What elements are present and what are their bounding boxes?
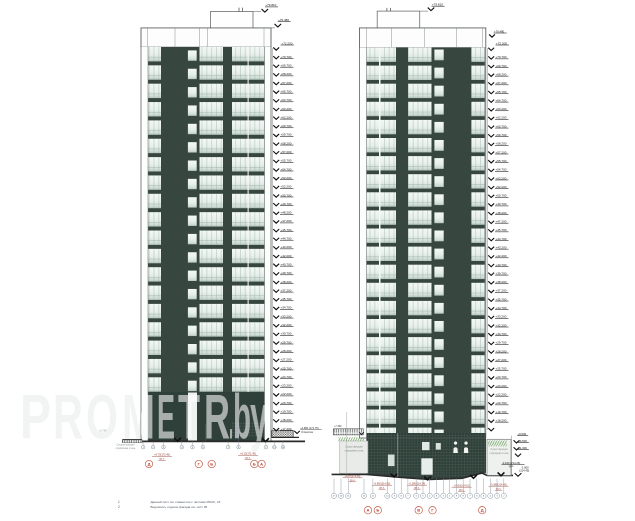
svg-text:+40.700: +40.700 [281, 262, 292, 266]
svg-text:+42.200: +42.200 [281, 254, 292, 258]
svg-text:Существующая: Существующая [116, 443, 135, 446]
svg-text:подпорная стена: подпорная стена [345, 449, 364, 452]
svg-text:(214.45): (214.45) [519, 468, 529, 472]
svg-text:+32.200: +32.200 [496, 323, 507, 327]
svg-text:+18.200: +18.200 [281, 418, 292, 422]
svg-text:+25.700: +25.700 [496, 367, 507, 371]
svg-text:+57.200: +57.200 [281, 150, 292, 154]
svg-text:+79.810: +79.810 [265, 3, 276, 7]
svg-text:ур.з.: ур.з. [159, 458, 164, 461]
svg-text:+53.200: +53.200 [281, 176, 292, 180]
svg-text:ур.з.: ур.з. [459, 488, 464, 491]
svg-text:+62.200: +62.200 [496, 116, 507, 120]
svg-text:+57.200: +57.200 [496, 150, 507, 154]
svg-text:+52.200: +52.200 [496, 185, 507, 189]
svg-text:+34.700: +34.700 [496, 306, 507, 310]
svg-text:+59.700: +59.700 [281, 133, 292, 137]
svg-text:В: В [417, 508, 420, 513]
svg-text:+22.200: +22.200 [496, 393, 507, 397]
svg-text:+22.200: +22.200 [281, 392, 292, 396]
svg-text:+4.680 (171.75): +4.680 (171.75) [300, 426, 319, 430]
svg-text:+17.200: +17.200 [281, 427, 292, 431]
svg-text:+35.700: +35.700 [496, 297, 507, 301]
svg-text:+27.200: +27.200 [496, 358, 507, 362]
svg-text:+59.700: +59.700 [496, 133, 507, 137]
svg-text:+23.200: +23.200 [496, 384, 507, 388]
svg-text:+70.700: +70.700 [281, 55, 292, 59]
svg-text:ур.з.: ур.з. [379, 486, 384, 489]
svg-text:-0.003(214.10): -0.003(214.10) [453, 484, 470, 487]
svg-text:+76.480: +76.480 [278, 18, 289, 22]
svg-text:+28.200: +28.200 [496, 349, 507, 353]
svg-text:+39.700: +39.700 [496, 271, 507, 275]
svg-text:Д: Д [481, 508, 484, 513]
svg-text:+18.200: +18.200 [496, 418, 507, 422]
svg-text:+68.200: +68.200 [281, 72, 292, 76]
svg-text:+47.200: +47.200 [496, 220, 507, 224]
svg-text:ур.з.: ур.з. [509, 465, 515, 468]
svg-text:+40.700: +40.700 [496, 263, 507, 267]
svg-text:Б: Б [210, 461, 213, 466]
svg-text:+33.200: +33.200 [281, 314, 292, 318]
svg-text:+72.200: +72.200 [496, 41, 507, 45]
svg-text:+65.700: +65.700 [496, 90, 507, 94]
svg-text:+68.200: +68.200 [496, 72, 507, 76]
svg-text:+23.200: +23.200 [281, 384, 292, 388]
svg-text:Данный лист см. совместно с ли: Данный лист см. совместно с листами 05/А… [151, 500, 221, 504]
svg-text:+72.200: +72.200 [282, 41, 293, 45]
svg-text:+19.700: +19.700 [281, 410, 292, 414]
svg-text:+65.700: +65.700 [281, 89, 292, 93]
svg-text:+32.200: +32.200 [281, 323, 292, 327]
svg-text:Существующая: Существующая [490, 448, 508, 451]
svg-text:+54.700: +54.700 [496, 168, 507, 172]
svg-text:+35.700: +35.700 [281, 297, 292, 301]
svg-text:+29.700: +29.700 [496, 341, 507, 345]
svg-text:+6.70(172.45): +6.70(172.45) [154, 454, 170, 457]
svg-text:Д: Д [148, 461, 151, 466]
svg-text:1: 1 [118, 500, 120, 504]
svg-text:+47.200: +47.200 [281, 219, 292, 223]
svg-text:+42.200: +42.200 [496, 254, 507, 258]
svg-text:+39.700: +39.700 [281, 271, 292, 275]
svg-text:+54.700: +54.700 [281, 167, 292, 171]
svg-text:+79.810: +79.810 [432, 2, 443, 6]
svg-text:ур.з.: ур.з. [496, 487, 501, 490]
svg-text:+37.200: +37.200 [496, 289, 507, 293]
svg-text:+25.700: +25.700 [281, 366, 292, 370]
svg-text:+6.87(173.05): +6.87(173.05) [345, 475, 361, 478]
svg-text:+49.700: +49.700 [281, 202, 292, 206]
svg-text:+38.200: +38.200 [281, 280, 292, 284]
svg-text:+30.700: +30.700 [281, 332, 292, 336]
svg-text:+7.450: +7.450 [334, 425, 342, 428]
svg-text:+45.700: +45.700 [281, 228, 292, 232]
svg-text:+69.700: +69.700 [281, 64, 292, 68]
svg-text:+63.200: +63.200 [281, 107, 292, 111]
svg-text:+45.700: +45.700 [496, 228, 507, 232]
svg-text:+63.200: +63.200 [496, 107, 507, 111]
svg-text:подпорная стена: подпорная стена [490, 452, 509, 455]
svg-text:Существующая: Существующая [345, 446, 363, 449]
svg-text:+64.700: +64.700 [496, 98, 507, 102]
svg-text:+48.200: +48.200 [496, 211, 507, 215]
svg-text:+20.700: +20.700 [496, 401, 507, 405]
svg-text:ур.з.: ур.з. [245, 457, 250, 460]
svg-text:+43.200: +43.200 [496, 245, 507, 249]
svg-text:+33.200: +33.200 [496, 315, 507, 319]
svg-text:+6.15(171.45): +6.15(171.45) [240, 453, 256, 456]
svg-text:+50.700: +50.700 [281, 193, 292, 197]
svg-text:Отмостка: Отмостка [301, 430, 313, 434]
svg-text:Ведомость отделки фасада см. л: Ведомость отделки фасада см. лист 05 [151, 505, 208, 509]
svg-text:А: А [260, 461, 263, 466]
svg-text:-0.380(214.05): -0.380(214.05) [490, 483, 507, 486]
svg-text:+58.200: +58.200 [496, 142, 507, 146]
svg-text:+4.500: +4.500 [518, 439, 527, 443]
svg-text:Б: Б [376, 508, 379, 513]
svg-text:Г: Г [198, 461, 201, 466]
svg-text:+58.200: +58.200 [281, 141, 292, 145]
svg-text:O: O [86, 383, 118, 453]
svg-text:+20.700: +20.700 [281, 401, 292, 405]
svg-text:+52.200: +52.200 [281, 185, 292, 189]
svg-text:+67.200: +67.200 [496, 81, 507, 85]
svg-text:+55.700: +55.700 [281, 159, 292, 163]
svg-text:2: 2 [118, 505, 120, 509]
svg-text:А: А [367, 508, 370, 513]
svg-text:R: R [53, 383, 83, 453]
svg-text:+6.000: +6.000 [518, 432, 527, 436]
svg-text:+6.745: +6.745 [99, 430, 107, 433]
svg-text:P: P [20, 383, 51, 453]
svg-text:+37.200: +37.200 [281, 288, 292, 292]
svg-text:+53.200: +53.200 [496, 176, 507, 180]
svg-text:+30.700: +30.700 [496, 332, 507, 336]
svg-text:+24.700: +24.700 [496, 375, 507, 379]
svg-text:-6.950(214.05): -6.950(214.05) [374, 482, 391, 485]
svg-text:+55.700: +55.700 [496, 159, 507, 163]
svg-text:+69.700: +69.700 [496, 64, 507, 68]
svg-text:+67.200: +67.200 [281, 81, 292, 85]
svg-text:+50.700: +50.700 [496, 194, 507, 198]
svg-text:+19.700: +19.700 [496, 410, 507, 414]
svg-text:ур.з.: ур.з. [414, 486, 419, 489]
svg-text:+60.700: +60.700 [496, 124, 507, 128]
svg-text:+34.700: +34.700 [281, 306, 292, 310]
svg-text:+70.700: +70.700 [496, 55, 507, 59]
svg-text:+62.200: +62.200 [281, 115, 292, 119]
svg-text:+1.300: +1.300 [518, 446, 527, 450]
svg-text:+29.700: +29.700 [281, 340, 292, 344]
svg-text:+44.700: +44.700 [496, 237, 507, 241]
svg-text:+76.480: +76.480 [494, 29, 505, 33]
svg-text:+48.200: +48.200 [281, 211, 292, 215]
svg-text:+49.700: +49.700 [496, 202, 507, 206]
svg-text:+44.700: +44.700 [281, 237, 292, 241]
svg-text:+60.700: +60.700 [281, 124, 292, 128]
svg-text:+43.200: +43.200 [281, 245, 292, 249]
svg-text:+27.200: +27.200 [281, 358, 292, 362]
svg-text:Г: Г [431, 508, 434, 513]
svg-text:+64.700: +64.700 [281, 98, 292, 102]
svg-text:+38.200: +38.200 [496, 280, 507, 284]
svg-text:+28.200: +28.200 [281, 349, 292, 353]
svg-text:ур.з.: ур.з. [350, 479, 355, 482]
svg-text:+24.700: +24.700 [281, 375, 292, 379]
svg-text:Б: Б [253, 461, 256, 466]
svg-text:подпорная стена: подпорная стена [116, 447, 136, 450]
